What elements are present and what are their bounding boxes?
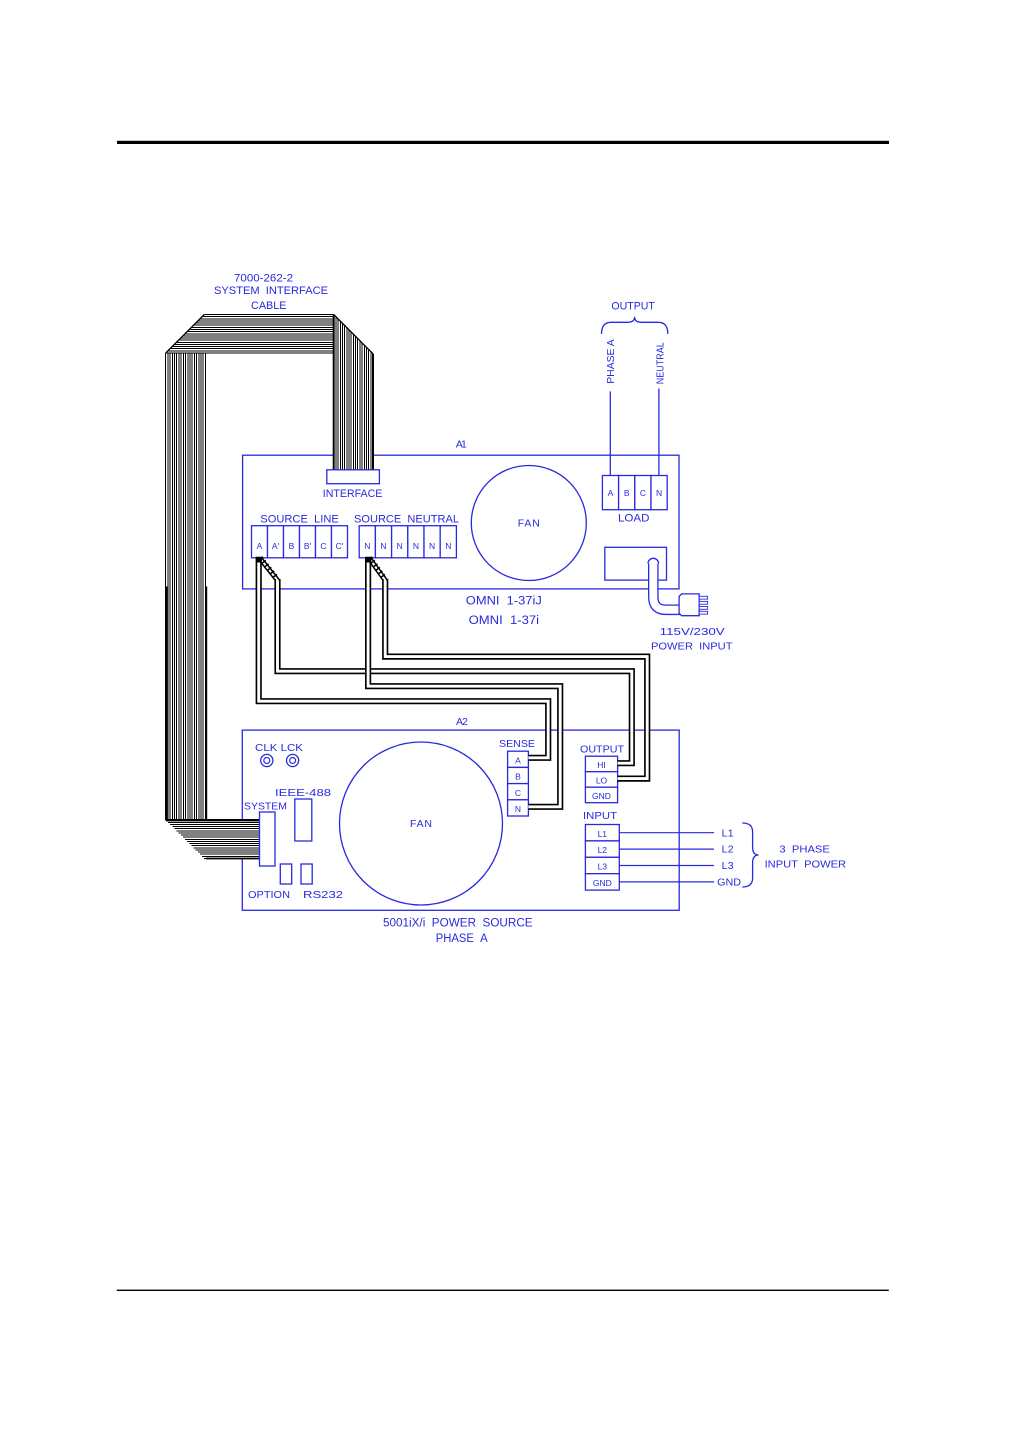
svg-text:LO: LO	[596, 776, 608, 786]
svg-text:OMNI 1-37i: OMNI 1-37i	[469, 615, 539, 627]
svg-text:N: N	[656, 488, 662, 498]
svg-text:OUTPUT: OUTPUT	[580, 743, 625, 755]
svg-text:FAN: FAN	[410, 818, 432, 830]
svg-text:PHASE A: PHASE A	[605, 339, 617, 384]
svg-text:L3: L3	[722, 860, 734, 872]
svg-text:N: N	[445, 541, 451, 551]
svg-text:OMNI 1-37iJ: OMNI 1-37iJ	[466, 595, 542, 607]
svg-text:A2: A2	[456, 716, 468, 728]
svg-text:INPUT: INPUT	[583, 810, 618, 822]
svg-text:A: A	[257, 541, 263, 551]
svg-text:PHASE A: PHASE A	[436, 933, 488, 945]
svg-text:C: C	[320, 541, 326, 551]
svg-text:OPTION: OPTION	[248, 889, 290, 901]
svg-text:OUTPUT: OUTPUT	[611, 301, 655, 313]
svg-text:LOAD: LOAD	[618, 513, 650, 525]
svg-text:A1: A1	[456, 439, 467, 451]
svg-text:INPUT POWER: INPUT POWER	[765, 859, 847, 871]
svg-text:B': B'	[304, 541, 312, 551]
svg-text:A: A	[515, 755, 521, 765]
svg-text:IEEE-488: IEEE-488	[275, 787, 331, 799]
svg-text:115V/230V: 115V/230V	[660, 626, 725, 638]
svg-text:7000-262-2: 7000-262-2	[234, 273, 293, 285]
svg-text:POWER INPUT: POWER INPUT	[651, 641, 733, 653]
svg-text:L1: L1	[598, 829, 608, 839]
svg-text:N: N	[380, 541, 386, 551]
svg-text:CABLE: CABLE	[251, 300, 287, 312]
svg-text:SOURCE NEUTRAL: SOURCE NEUTRAL	[354, 513, 459, 525]
svg-text:GND: GND	[717, 877, 741, 889]
svg-text:GND: GND	[593, 878, 612, 888]
svg-text:L3: L3	[598, 862, 608, 872]
svg-text:SENSE: SENSE	[499, 738, 535, 750]
svg-text:SYSTEM INTERFACE: SYSTEM INTERFACE	[214, 285, 328, 297]
svg-text:N: N	[413, 541, 419, 551]
svg-text:5001iX/i POWER SOURCE: 5001iX/i POWER SOURCE	[383, 917, 533, 929]
svg-text:HI: HI	[597, 760, 606, 770]
svg-text:SYSTEM: SYSTEM	[244, 800, 287, 812]
svg-text:SOURCE LINE: SOURCE LINE	[260, 513, 339, 525]
svg-text:B: B	[515, 772, 521, 782]
svg-text:B: B	[289, 541, 295, 551]
svg-text:L1: L1	[722, 827, 734, 839]
svg-text:N: N	[515, 804, 521, 814]
svg-text:RS232: RS232	[303, 889, 343, 901]
svg-text:N: N	[364, 541, 370, 551]
svg-text:L2: L2	[598, 845, 608, 855]
svg-text:C: C	[640, 488, 646, 498]
svg-text:3 PHASE: 3 PHASE	[779, 844, 830, 856]
svg-text:C': C'	[336, 541, 344, 551]
svg-text:CLK LCK: CLK LCK	[255, 742, 303, 754]
svg-text:L2: L2	[722, 844, 734, 856]
svg-text:FAN: FAN	[518, 518, 540, 530]
svg-text:N: N	[429, 541, 435, 551]
svg-text:A: A	[608, 488, 614, 498]
svg-text:GND: GND	[592, 791, 611, 801]
svg-text:B: B	[624, 488, 630, 498]
svg-text:A': A'	[272, 541, 280, 551]
svg-text:C: C	[515, 788, 521, 798]
svg-text:NEUTRAL: NEUTRAL	[655, 342, 667, 384]
svg-text:INTERFACE: INTERFACE	[323, 488, 383, 500]
svg-text:N: N	[397, 541, 403, 551]
